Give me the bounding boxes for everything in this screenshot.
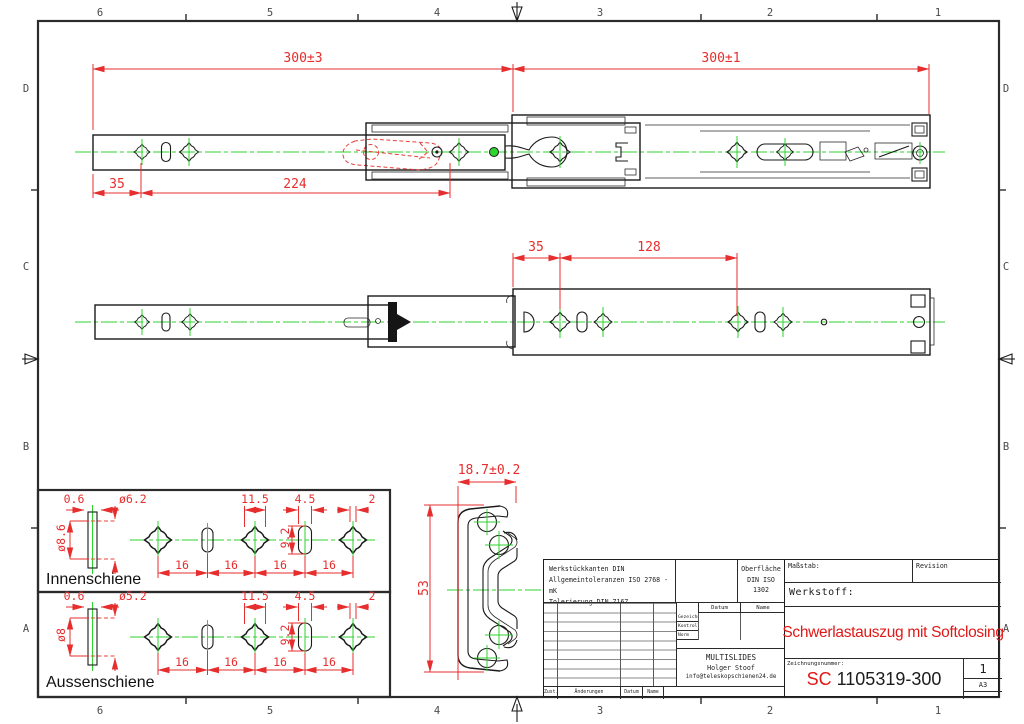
zone-col-label: 5	[267, 7, 273, 19]
zone-col-label: 2	[767, 7, 773, 19]
detail-label-outer: Aussenschiene	[46, 674, 155, 691]
svg-text:300±1: 300±1	[701, 51, 740, 66]
zone-col-label: 1	[935, 705, 941, 717]
center-marker-top	[512, 2, 522, 21]
latch-mechanism-hidden	[343, 139, 442, 170]
revision-grid	[544, 602, 676, 686]
revision-footer: Zust. Änderungen Datum Name	[544, 686, 784, 698]
title-block-right: Maßstab: Revision Werkstoff: Schwerlasta…	[784, 560, 1000, 698]
tolerance-line: Werkstückkanten DIN	[549, 564, 675, 575]
inner-rail-detail: 0.6 ø8.6 ø6.2 11.5 4.5 2	[38, 490, 390, 592]
column-header-datum: Datum	[698, 603, 740, 613]
drawing-number-prefix: SC	[807, 669, 832, 689]
svg-text:16: 16	[273, 558, 287, 572]
front-view: 35 128	[75, 240, 945, 355]
zone-row-label: C	[23, 261, 29, 273]
svg-text:16: 16	[322, 655, 336, 669]
zone-col-label: 4	[434, 7, 440, 19]
sheet-number: 1	[964, 659, 1002, 679]
footer-zust: Zust.	[544, 687, 558, 699]
svg-text:11.5: 11.5	[241, 492, 269, 506]
svg-text:0.6: 0.6	[64, 589, 85, 603]
grid-line	[557, 603, 558, 687]
rivet-marker	[490, 148, 499, 157]
company-box: MULTISLIDES Holger Stoof info@teleskopsc…	[677, 648, 785, 687]
surface-line: 1302	[738, 585, 784, 596]
zone-col-label: 3	[597, 705, 603, 717]
svg-text:16: 16	[175, 655, 189, 669]
ball-cage-strip	[372, 125, 508, 132]
svg-text:16: 16	[175, 558, 189, 572]
grid-line	[740, 613, 741, 640]
tolerance-line: Allgemeintoleranzen ISO 2768 - mK	[549, 575, 675, 597]
svg-text:16: 16	[224, 558, 238, 572]
row-label-checked: Kontrolliert	[677, 622, 698, 631]
dimension-35-128: 35 128	[513, 240, 737, 316]
footer-blank	[664, 687, 784, 699]
zone-row-label: B	[1003, 441, 1009, 453]
signature-grid: Datum Name Gezeichnet Kontrolliert Norm …	[676, 602, 784, 686]
dimension-300-1: 300±1	[513, 51, 929, 69]
drawing-sheet: 6 5 4 3 2 1 6 5 4 3 2 1 D C B A D C B A	[0, 0, 1024, 724]
zone-row-label: C	[1003, 261, 1009, 273]
dimension-53: 53	[417, 505, 484, 672]
ball-cage-strip	[527, 117, 625, 125]
revision-label: Revision	[912, 560, 1001, 582]
scale-label: Maßstab:	[785, 560, 912, 582]
svg-text:16: 16	[322, 558, 336, 572]
svg-text:16: 16	[273, 655, 287, 669]
zone-col-label: 6	[97, 7, 103, 19]
top-view: 300±3 300±1 35 224	[75, 51, 945, 198]
column-header-name: Name	[740, 603, 785, 613]
detail-label-inner: Innenschiene	[46, 571, 141, 588]
title-block: Werkstückkanten DIN Allgemeintoleranzen …	[543, 559, 999, 697]
svg-text:53: 53	[417, 580, 432, 596]
section-view: 18.7±0.2 53	[417, 463, 545, 680]
svg-text:ø5.2: ø5.2	[119, 589, 147, 603]
ball-cage-strip	[527, 178, 625, 186]
row-label-norm: Norm	[677, 631, 698, 640]
svg-text:2: 2	[369, 589, 376, 603]
drawing-number-box: Zeichnungsnummer: SC 1105319-300 1 A3	[785, 658, 1001, 698]
company-author: Holger Stoof	[677, 664, 785, 672]
dimension-300-3: 300±3	[93, 51, 929, 130]
svg-text:9.2: 9.2	[278, 528, 292, 549]
section-profile	[458, 506, 517, 671]
zone-col-label: 6	[97, 705, 103, 717]
latch-block	[388, 302, 411, 342]
zone-col-label: 2	[767, 705, 773, 717]
svg-text:16: 16	[224, 655, 238, 669]
zone-row-label: D	[23, 83, 29, 95]
company-email: info@teleskopschienen24.de	[677, 674, 785, 680]
footer-aenderungen: Änderungen	[558, 687, 621, 699]
svg-text:ø6.2: ø6.2	[119, 492, 147, 506]
svg-text:128: 128	[637, 240, 660, 255]
zone-col-label: 1	[935, 7, 941, 19]
svg-text:4.5: 4.5	[295, 492, 316, 506]
grid-line	[698, 613, 699, 640]
svg-text:ø8.6: ø8.6	[54, 524, 68, 552]
grid-line	[653, 603, 654, 687]
svg-text:35: 35	[109, 177, 125, 192]
svg-text:18.7±0.2: 18.7±0.2	[458, 463, 521, 478]
zone-col-label: 5	[267, 705, 273, 717]
drawing-number-value: 1105319-300	[832, 669, 942, 689]
detail-dimensions: 0.6 ø8 ø5.2 11.5 4.5 2	[54, 589, 375, 675]
zone-row-label: D	[1003, 83, 1009, 95]
ball-cage-strip	[372, 172, 508, 179]
outer-rail-detail: 0.6 ø8 ø5.2 11.5 4.5 2	[38, 589, 390, 697]
drawing-number-label: Zeichnungsnummer:	[787, 661, 844, 667]
footer-name: Name	[643, 687, 664, 699]
center-marker-left	[22, 354, 38, 364]
empty-cell	[675, 560, 737, 602]
surface-line: Oberfläche	[738, 564, 784, 575]
zone-col-label: 4	[434, 705, 440, 717]
svg-text:35: 35	[528, 240, 544, 255]
drawing-title: Schwerlastauszug mit Softclosing	[785, 606, 1001, 658]
company-name: MULTISLIDES	[677, 653, 785, 662]
center-marker-bottom	[512, 697, 522, 722]
svg-text:9.2: 9.2	[278, 625, 292, 646]
svg-text:11.5: 11.5	[241, 589, 269, 603]
grid-line	[620, 603, 621, 687]
surface-line: DIN ISO	[738, 575, 784, 586]
tolerance-notes: Werkstückkanten DIN Allgemeintoleranzen …	[544, 560, 675, 602]
sheet-format: A3	[964, 679, 1002, 692]
zone-row-label: B	[23, 441, 29, 453]
zone-row-label: A	[23, 623, 30, 635]
svg-text:ø8: ø8	[54, 628, 68, 642]
footer-datum: Datum	[621, 687, 643, 699]
row-label-drawn: Gezeichnet	[677, 613, 698, 622]
svg-text:4.5: 4.5	[295, 589, 316, 603]
svg-text:300±3: 300±3	[283, 51, 322, 66]
svg-text:2: 2	[369, 492, 376, 506]
zone-col-label: 3	[597, 7, 603, 19]
svg-text:224: 224	[283, 177, 307, 192]
svg-text:0.6: 0.6	[64, 492, 85, 506]
surface-note: Oberfläche DIN ISO 1302	[737, 560, 784, 602]
detail-dimensions: 0.6 ø8.6 ø6.2 11.5 4.5 2	[54, 492, 375, 578]
center-marker-right	[999, 354, 1015, 364]
material-label: Werkstoff:	[785, 582, 1001, 606]
drawing-number: SC 1105319-300	[785, 669, 963, 690]
sheet-box: 1 A3	[963, 659, 1001, 699]
zone-row-label: A	[1003, 623, 1010, 635]
